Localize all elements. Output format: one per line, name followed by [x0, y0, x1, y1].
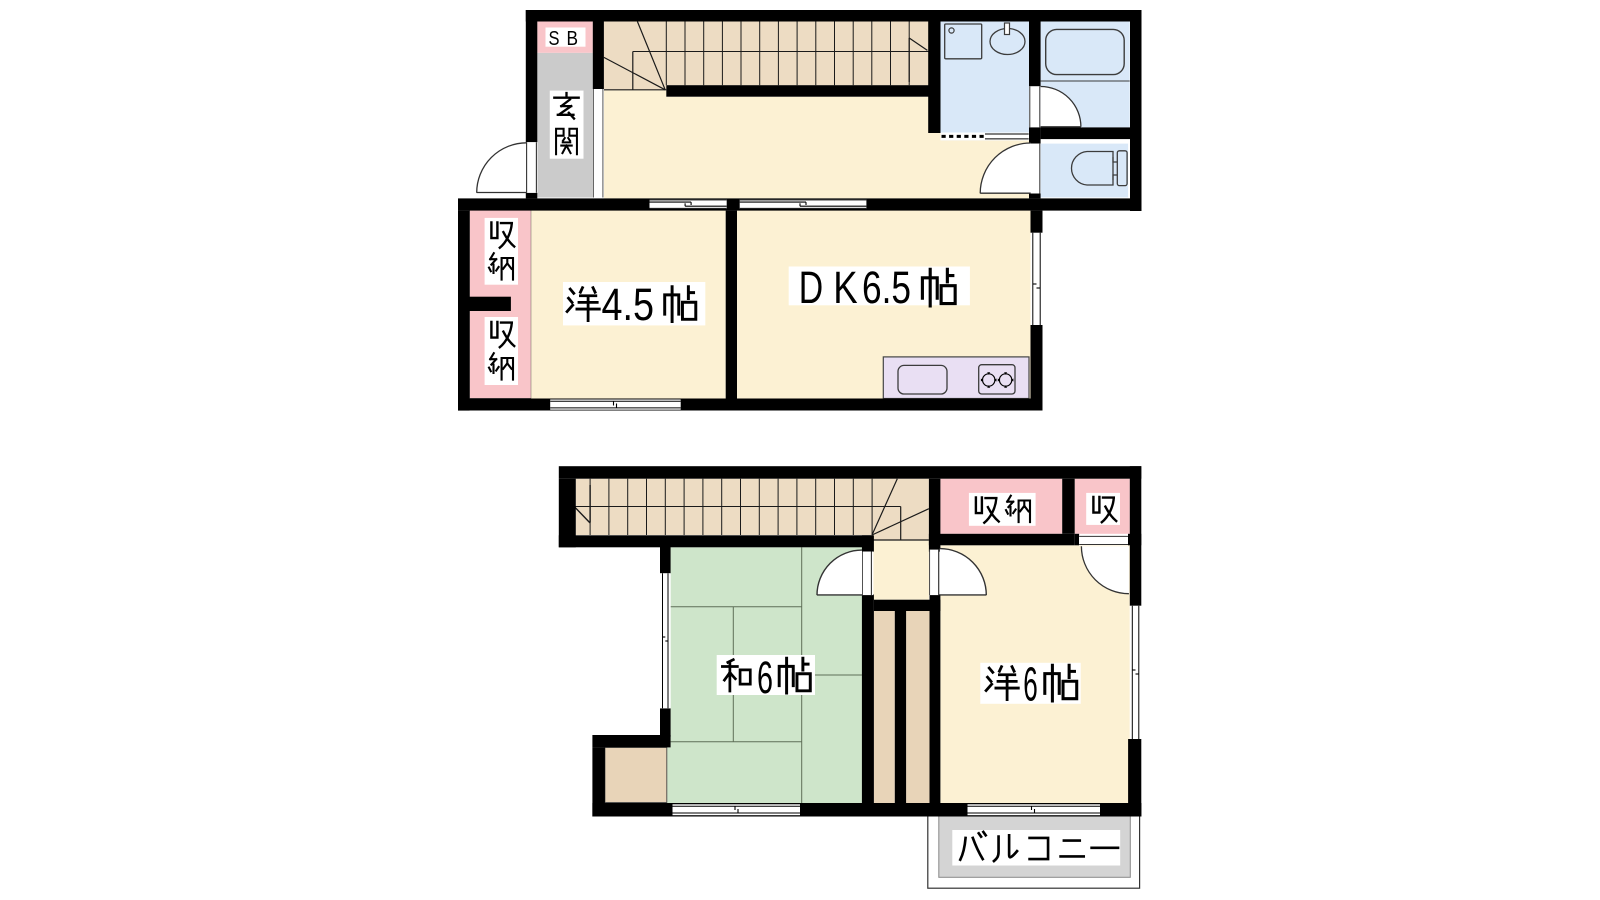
svg-text:6.5: 6.5 [862, 262, 911, 313]
svg-text:D: D [799, 262, 823, 313]
svg-text:6: 6 [1023, 659, 1038, 712]
svg-text:S: S [549, 28, 560, 50]
svg-text:6: 6 [757, 652, 773, 703]
svg-text:4.5: 4.5 [602, 279, 655, 330]
svg-text:K: K [833, 262, 857, 313]
svg-text:B: B [567, 28, 579, 50]
